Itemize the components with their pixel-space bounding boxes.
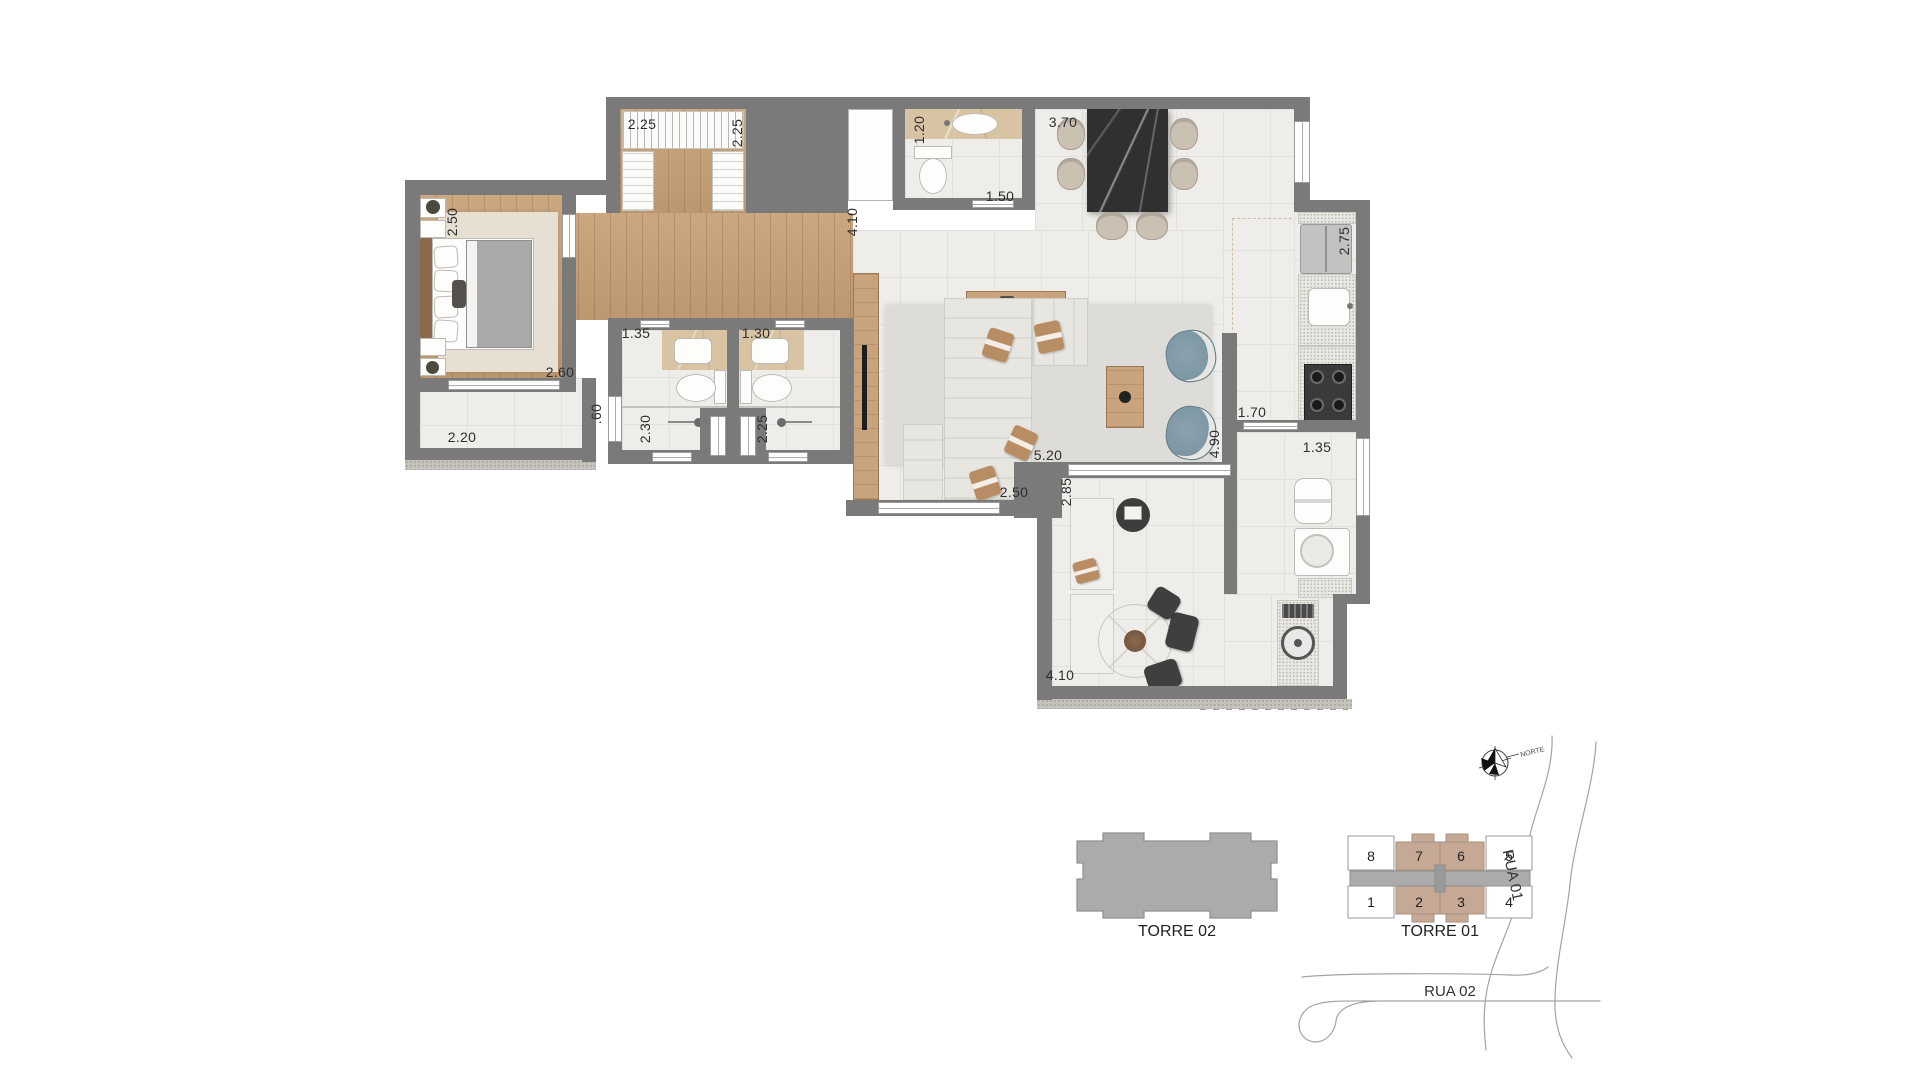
hall-floor xyxy=(562,213,853,320)
dim-balcony-width: 2.20 xyxy=(438,427,486,447)
tv-screen xyxy=(862,345,867,430)
bath2-shower-head xyxy=(777,418,786,427)
kitchen-island-guide xyxy=(1232,218,1292,330)
wall-dining-right-top xyxy=(1294,109,1310,121)
unit-2-number: 2 xyxy=(1415,894,1423,910)
water-heater xyxy=(1294,478,1332,524)
dim-closet-depth: 2.25 xyxy=(727,109,747,157)
coffee-table-bowl xyxy=(1119,391,1131,403)
dim-living-window: 2.50 xyxy=(990,482,1038,502)
dim-bath2-depth: 2.25 xyxy=(752,405,772,453)
flex-room xyxy=(848,109,893,201)
kitchen-faucet xyxy=(1347,303,1353,309)
living-window xyxy=(878,502,1000,514)
sofa-ottoman xyxy=(903,424,943,502)
dim-lavabo-width: 1.20 xyxy=(909,106,929,154)
lavabo-basin xyxy=(952,113,998,135)
dining-chair-2 xyxy=(1057,158,1085,190)
dining-chair-5 xyxy=(1096,212,1128,240)
wall-outer-right-kitchen xyxy=(1356,212,1370,432)
dim-living-depth: 4.90 xyxy=(1204,420,1224,468)
wardrobe-right xyxy=(712,151,744,211)
balcony-outer-band xyxy=(405,460,596,470)
fridge-door-split xyxy=(1325,226,1327,272)
dining-chair-3 xyxy=(1170,118,1198,150)
dim-service-door: 1.70 xyxy=(1228,402,1276,422)
burner-4 xyxy=(1332,398,1346,412)
wall-terrace-bottom xyxy=(1044,686,1347,700)
dim-bedroom-depth: 2.50 xyxy=(442,198,462,246)
nightstand-plant xyxy=(426,200,440,214)
dim-hall-length: 4.10 xyxy=(842,198,862,246)
bed-pillow-1 xyxy=(433,245,458,269)
lavabo-faucet xyxy=(944,120,950,126)
dim-bath1-depth: 2.30 xyxy=(635,405,655,453)
wall-bedroom-top xyxy=(405,180,620,195)
dim-bedroom-width: 2.60 xyxy=(536,362,584,382)
wall-top-main xyxy=(606,97,1310,109)
wall-outer-left xyxy=(405,180,420,470)
dim-dining-width: 3.70 xyxy=(1039,112,1087,132)
side-table-tray xyxy=(1124,506,1142,520)
dim-living-length: 5.20 xyxy=(1024,445,1072,465)
bath-left-window xyxy=(608,396,622,442)
wall-lavabo-left xyxy=(893,109,905,210)
torre02-label: TORRE 02 xyxy=(1138,923,1216,940)
bedroom-door-gap xyxy=(562,214,576,258)
floor-plan-canvas: 2.25 2.25 1.20 1.50 3.70 2.75 4.10 2.50 … xyxy=(0,0,1920,1080)
unit-3-number: 3 xyxy=(1457,894,1465,910)
dim-terrace-width: 4.10 xyxy=(1036,665,1084,685)
rua02-top-edge xyxy=(1302,967,1548,977)
rua01-right-edge xyxy=(1555,742,1596,1058)
dim-ledge-width: .60 xyxy=(586,390,606,438)
bath1-toilet-bowl xyxy=(676,374,716,402)
bath2-shower-arm xyxy=(786,421,812,423)
service-door-gap xyxy=(1243,422,1298,430)
service-window xyxy=(1356,438,1370,516)
bath2-toilet-tank xyxy=(740,370,752,404)
bath2-bottom-window xyxy=(768,452,808,462)
dim-kitchen-depth: 2.75 xyxy=(1334,217,1354,265)
nightstand-3 xyxy=(420,338,446,356)
terrace-outer-band xyxy=(1037,699,1352,709)
burner-3 xyxy=(1310,398,1324,412)
bath1-bottom-window xyxy=(652,452,692,462)
dim-closet-width: 2.25 xyxy=(618,114,666,134)
dim-bath2-width: 1.30 xyxy=(732,323,780,343)
dining-chair-6 xyxy=(1136,212,1168,240)
torre01-label: TORRE 01 xyxy=(1401,923,1479,940)
gourmet-grill-center xyxy=(1294,639,1302,647)
dining-table xyxy=(1087,109,1168,212)
gourmet-appliance xyxy=(1282,604,1314,618)
lavabo-toilet-bowl xyxy=(919,158,947,194)
north-arrow-icon xyxy=(1479,746,1519,780)
bath1-basin xyxy=(674,338,712,364)
unit-8-number: 8 xyxy=(1367,848,1375,864)
dim-terrace-depth: 2.85 xyxy=(1056,468,1076,516)
wall-entry-block xyxy=(746,109,848,213)
unit-1-number: 1 xyxy=(1367,894,1375,910)
bed-accent-pillow xyxy=(452,280,466,308)
bath1-shower-arm xyxy=(668,421,694,423)
dim-service-window: 1.35 xyxy=(1293,437,1341,457)
wardrobe-left xyxy=(622,151,654,211)
dining-chair-4 xyxy=(1170,158,1198,190)
unit-6-number: 6 xyxy=(1457,848,1465,864)
shower-block-slot-1 xyxy=(710,416,726,456)
torre01-core xyxy=(1435,865,1445,892)
norte-label: NORTE xyxy=(1520,746,1546,759)
wall-kitchen-top-stub xyxy=(1294,200,1370,212)
wall-bath-right xyxy=(840,318,853,464)
kitchen-sink xyxy=(1308,288,1350,326)
bed-headboard xyxy=(420,238,432,350)
unit-7-number: 7 xyxy=(1415,848,1423,864)
washer-drum xyxy=(1300,534,1334,568)
burner-1 xyxy=(1310,370,1324,384)
dim-lavabo-door: 1.50 xyxy=(976,186,1024,206)
site-plan: 8 7 6 5 1 2 3 4 TORRE 02 TORRE 01 RUA 02… xyxy=(1040,720,1620,1060)
terrace-table-flowers xyxy=(1124,630,1146,652)
bed-duvet xyxy=(466,240,532,348)
burner-2 xyxy=(1332,370,1346,384)
rua02-label: RUA 02 xyxy=(1424,983,1476,1000)
dining-window xyxy=(1294,121,1310,183)
nightstand-plant-2 xyxy=(426,361,439,374)
wall-service-terrace xyxy=(1224,478,1237,594)
wall-terrace-right xyxy=(1333,600,1347,698)
dim-bath1-width: 1.35 xyxy=(612,323,660,343)
bath2-toilet-bowl xyxy=(752,374,792,402)
torre02-footprint xyxy=(1077,833,1277,918)
